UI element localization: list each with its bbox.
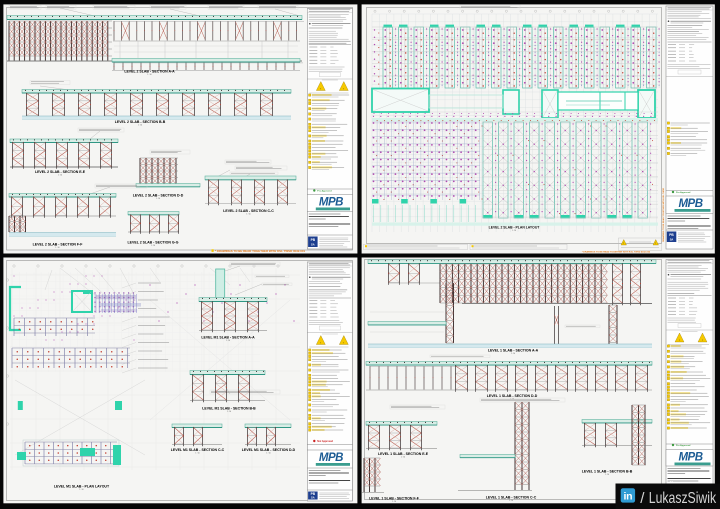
svg-text:* DRAWINGS TO BE READ TOGETHER: * DRAWINGS TO BE READ TOGETHER WITH KSL … — [582, 251, 651, 254]
svg-text:LEVEL 1 SLAB - SECTION F-F: LEVEL 1 SLAB - SECTION F-F — [369, 497, 420, 501]
svg-text:LEVEL 2 SLAB - SECTION B-B: LEVEL 2 SLAB - SECTION B-B — [115, 120, 166, 124]
svg-text:Pro Approved: Pro Approved — [676, 191, 691, 194]
svg-text:1 : 50: 1 : 50 — [392, 501, 396, 503]
svg-text:1 : 50: 1 : 50 — [79, 489, 83, 491]
svg-text:1 : 50: 1 : 50 — [266, 453, 270, 455]
svg-text:1 : 50: 1 : 50 — [509, 500, 513, 502]
svg-text:1 : 50: 1 : 50 — [510, 399, 514, 401]
svg-text:LEVEL 1 SLAB - SECTION D-D: LEVEL 1 SLAB - SECTION D-D — [487, 394, 538, 398]
svg-text:1 : 50: 1 : 50 — [511, 353, 515, 355]
svg-text:LEVEL M1 SLAB - SECTION B-B: LEVEL M1 SLAB - SECTION B-B — [202, 407, 256, 411]
svg-text:1 : 50: 1 : 50 — [246, 214, 250, 216]
svg-text:1 : 50: 1 : 50 — [401, 457, 405, 459]
svg-text:LEVEL 2 SLAB - SECTION C-C: LEVEL 2 SLAB - SECTION C-C — [223, 209, 274, 213]
svg-text:SA: SA — [311, 242, 315, 246]
svg-text:1 : 50: 1 : 50 — [156, 198, 160, 200]
svg-text:LEVEL M1 SLAB - SECTION A-A: LEVEL M1 SLAB - SECTION A-A — [201, 336, 255, 340]
svg-text:MPB: MPB — [319, 452, 343, 464]
svg-text:SA: SA — [311, 495, 315, 499]
svg-text:SA: SA — [670, 237, 674, 241]
svg-text:LEVEL 2 SLAB - SECTION D-D: LEVEL 2 SLAB - SECTION D-D — [133, 194, 184, 198]
svg-text:LEVEL 2 SLAB - PLAN LAYOUT: LEVEL 2 SLAB - PLAN LAYOUT — [489, 225, 541, 229]
svg-text:1 : 50: 1 : 50 — [605, 474, 609, 476]
svg-text:Not Approved: Not Approved — [317, 440, 333, 443]
svg-text:LEVEL 1 SLAB - SECTION A-A: LEVEL 1 SLAB - SECTION A-A — [488, 349, 539, 353]
svg-text:LEVEL 2 SLAB - SECTION F-F: LEVEL 2 SLAB - SECTION F-F — [33, 243, 84, 247]
svg-text:LEVEL 1 SLAB - SECTION C-C: LEVEL 1 SLAB - SECTION C-C — [486, 496, 537, 500]
svg-text:DRAWINGS TO BE READ TOGETHER W: DRAWINGS TO BE READ TOGETHER WITH KSL TW… — [662, 187, 665, 242]
svg-text:Pro Approved: Pro Approved — [317, 190, 332, 193]
svg-text:LEVEL 2 SLAB - SECTION G-G: LEVEL 2 SLAB - SECTION G-G — [128, 241, 179, 245]
svg-text:LEVEL M1 SLAB - SECTION C-C: LEVEL M1 SLAB - SECTION C-C — [171, 448, 225, 452]
svg-text:1 : 50: 1 : 50 — [227, 411, 231, 413]
svg-text:1 : 50: 1 : 50 — [58, 175, 62, 177]
svg-text:MPB: MPB — [319, 197, 343, 209]
svg-text:LEVEL 1 SLAB - SECTION E-E: LEVEL 1 SLAB - SECTION E-E — [378, 452, 429, 456]
svg-text:1 : 50: 1 : 50 — [147, 74, 151, 76]
svg-text:1 : 50: 1 : 50 — [195, 453, 199, 455]
svg-text:1 : 50: 1 : 50 — [55, 247, 59, 249]
svg-text:1 : 50: 1 : 50 — [151, 245, 155, 247]
svg-text:1 : 50: 1 : 50 — [226, 340, 230, 342]
svg-text:PB: PB — [669, 233, 674, 237]
svg-text:LEVEL M1 SLAB - PLAN LAYOUT: LEVEL M1 SLAB - PLAN LAYOUT — [54, 485, 110, 489]
svg-text:LEVEL 2 SLAB - SECTION A-A: LEVEL 2 SLAB - SECTION A-A — [124, 70, 175, 74]
svg-text:PB: PB — [311, 238, 316, 242]
svg-text:LEVEL 2 SLAB - SECTION E-E: LEVEL 2 SLAB - SECTION E-E — [35, 170, 86, 174]
svg-text:1 : 50: 1 : 50 — [512, 230, 516, 232]
svg-text:LEVEL 1 SLAB - SECTION B-B: LEVEL 1 SLAB - SECTION B-B — [582, 470, 633, 474]
svg-text:MPB: MPB — [678, 198, 702, 210]
svg-text:1 : 50: 1 : 50 — [138, 125, 142, 127]
svg-text:LEVEL M1 SLAB - SECTION D-D: LEVEL M1 SLAB - SECTION D-D — [242, 448, 296, 452]
svg-text:* DRAWINGS TO BE READ TOGETHER: * DRAWINGS TO BE READ TOGETHER WITH KSL … — [215, 249, 306, 253]
